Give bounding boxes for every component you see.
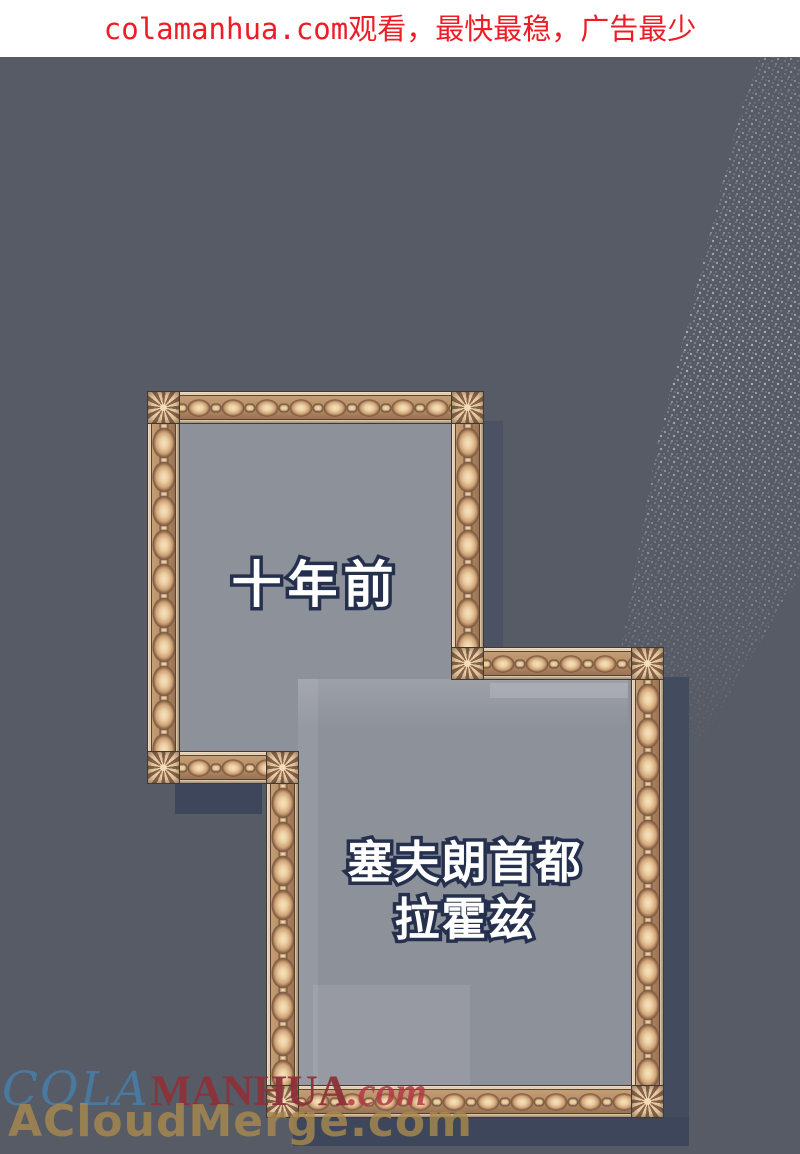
frame-border-right-2 (632, 648, 663, 1117)
panel1-caption-text: 十年前 (232, 555, 400, 614)
frame-corner-ornament (632, 648, 663, 679)
frame-border-left-1 (148, 392, 179, 783)
frame-corner-ornament (148, 752, 179, 783)
ad-banner-text: colamanhua.com观看，最快最稳，广告最少 (104, 6, 696, 51)
mirror-watermark: ACloudMerge.com (8, 1096, 473, 1147)
frame-shadow-right-upper (483, 421, 503, 677)
ad-banner: colamanhua.com观看，最快最稳，广告最少 (0, 0, 800, 57)
frame-border-top-1 (148, 392, 483, 423)
panel2-caption-line1-text: 塞夫朗首都 (347, 836, 582, 889)
frame-corner-ornament (267, 752, 298, 783)
comic-page: colamanhua.com观看，最快最稳，广告最少 (0, 0, 800, 1154)
frame-corner-ornament (632, 1086, 663, 1117)
panel2-caption-line2-text: 拉霍兹 (394, 893, 535, 946)
frame-border-right-1 (452, 392, 483, 679)
panel1-caption: 十年前 十年前 (179, 555, 452, 615)
panel2-caption: 塞夫朗首都 塞夫朗首都 拉霍兹 拉霍兹 (298, 834, 632, 948)
frame-shadow-right (663, 677, 689, 1146)
frame-corner-ornament (452, 392, 483, 423)
frame-corner-ornament (452, 648, 483, 679)
panel2-highlight-strip (490, 683, 628, 698)
frame-corner-ornament (148, 392, 179, 423)
frame-shadow-left-notch (175, 783, 262, 814)
